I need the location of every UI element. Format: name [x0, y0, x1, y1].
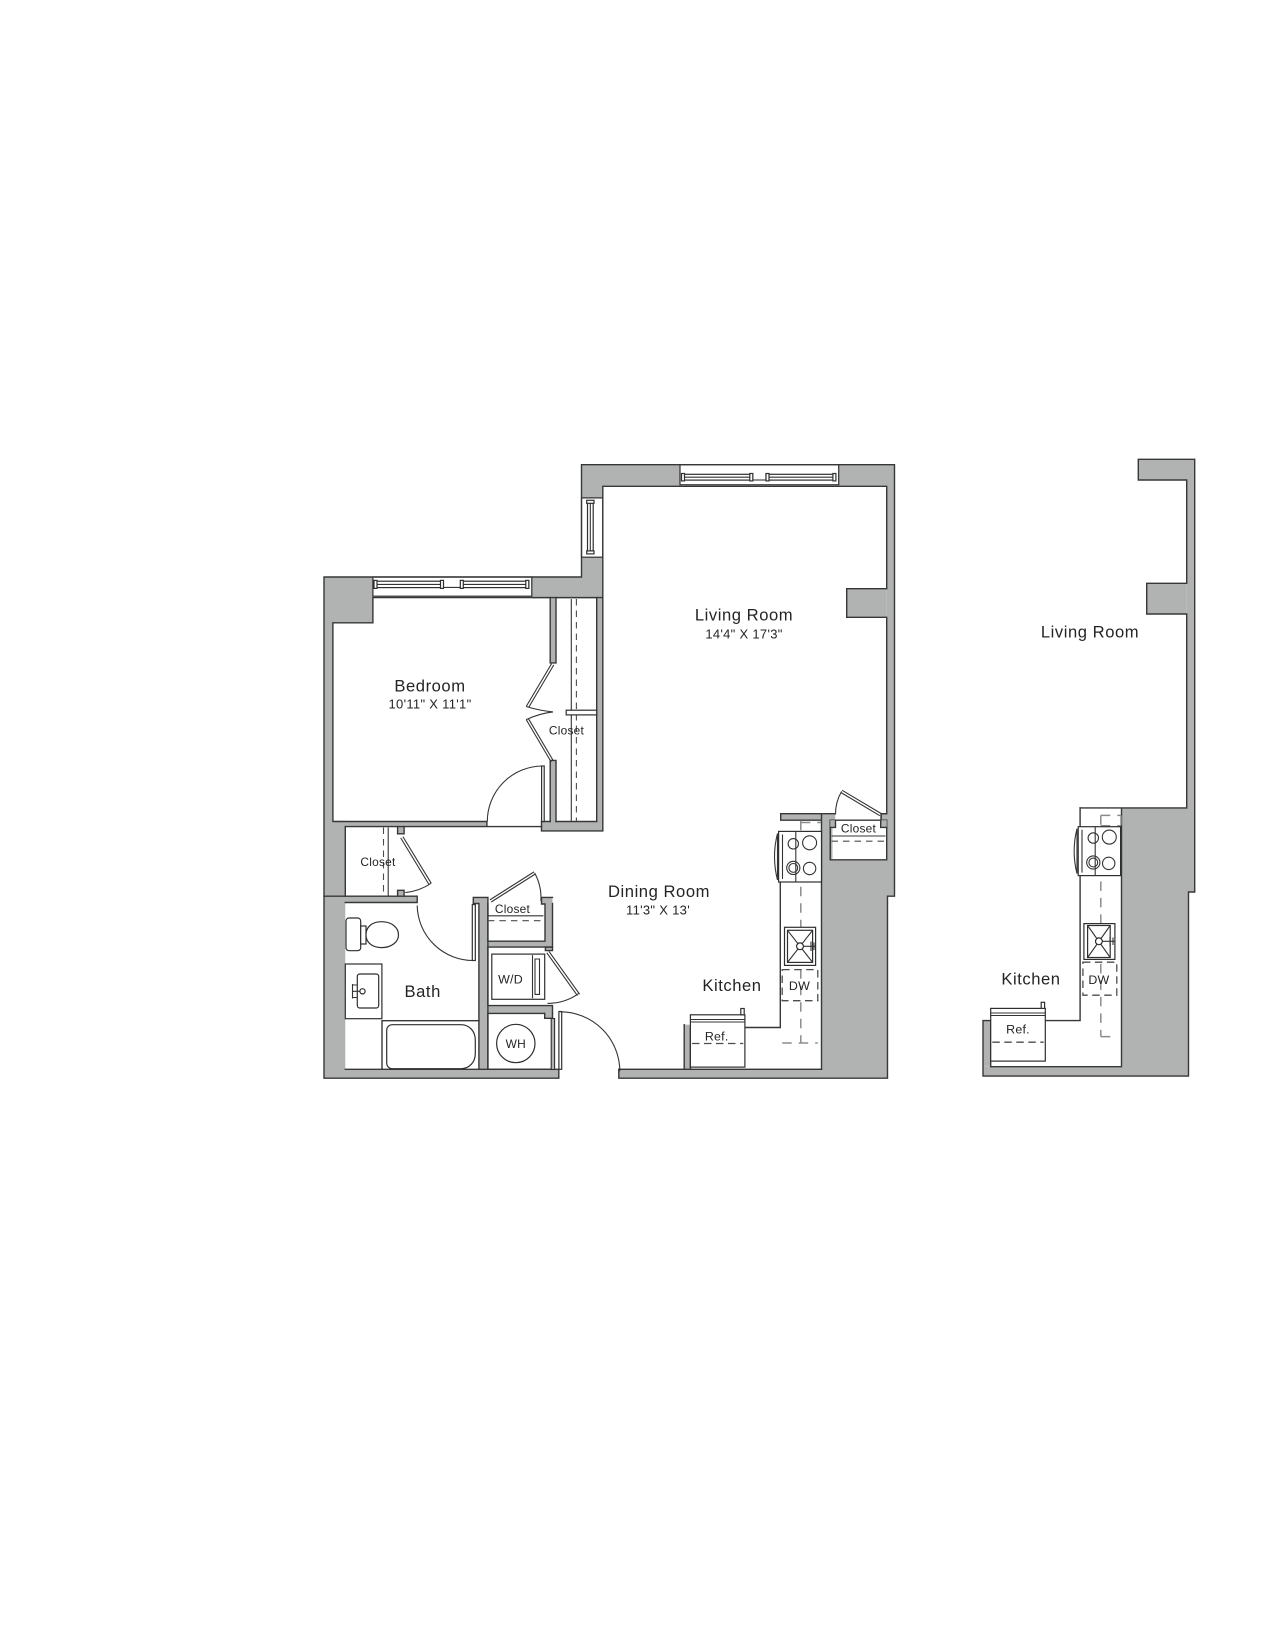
svg-text:Bedroom: Bedroom	[394, 677, 465, 696]
svg-text:DW: DW	[789, 979, 810, 993]
svg-text:W/D: W/D	[498, 973, 523, 987]
svg-text:Ref.: Ref.	[1006, 1023, 1030, 1037]
svg-text:Bath: Bath	[405, 982, 441, 1001]
svg-text:Closet: Closet	[360, 855, 396, 869]
svg-text:DW: DW	[1088, 973, 1109, 987]
svg-text:Closet: Closet	[549, 724, 585, 738]
svg-text:Living Room: Living Room	[695, 606, 793, 625]
svg-text:Ref.: Ref.	[705, 1030, 729, 1044]
svg-text:Kitchen: Kitchen	[702, 976, 761, 995]
svg-text:Kitchen: Kitchen	[1001, 970, 1060, 989]
svg-text:Closet: Closet	[841, 822, 877, 836]
svg-text:11'3" X 13': 11'3" X 13'	[626, 903, 690, 918]
svg-text:Closet: Closet	[495, 902, 531, 916]
svg-text:WH: WH	[506, 1037, 526, 1051]
svg-text:10'11" X 11'1": 10'11" X 11'1"	[389, 697, 472, 712]
svg-text:Dining Room: Dining Room	[608, 882, 710, 901]
svg-text:14'4" X 17'3": 14'4" X 17'3"	[705, 627, 782, 642]
svg-text:Living Room: Living Room	[1041, 623, 1139, 642]
